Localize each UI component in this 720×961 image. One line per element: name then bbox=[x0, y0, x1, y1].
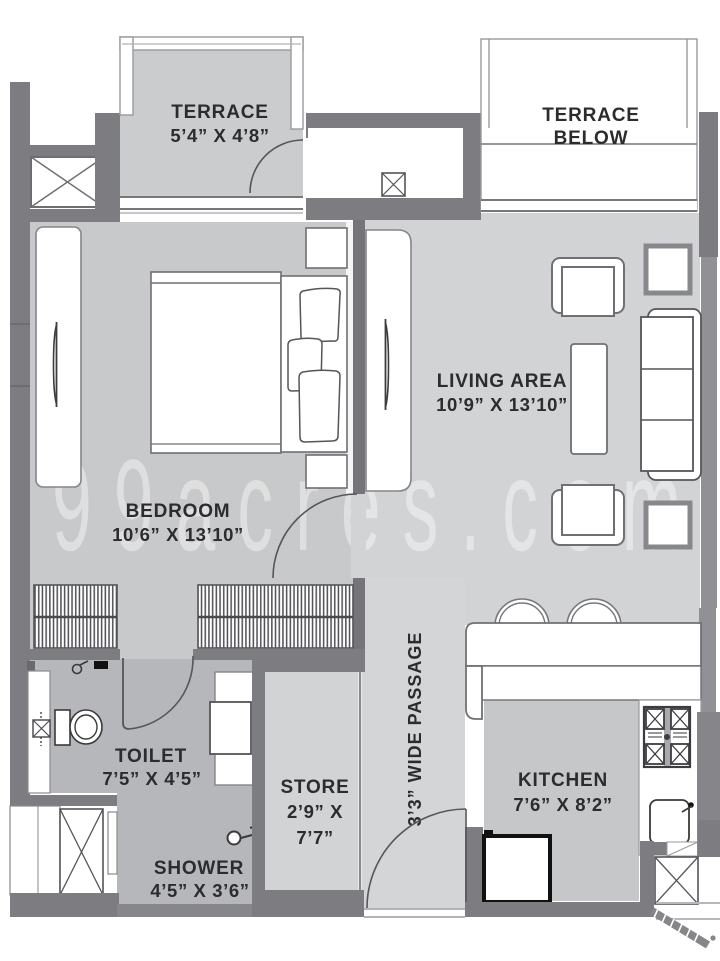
svg-text:4’5” X 3’6”: 4’5” X 3’6” bbox=[150, 880, 249, 901]
svg-text:3’3” WIDE PASSAGE: 3’3” WIDE PASSAGE bbox=[405, 632, 425, 827]
svg-text:KITCHEN: KITCHEN bbox=[518, 770, 608, 791]
svg-text:5’4” X 4’8”: 5’4” X 4’8” bbox=[170, 125, 269, 146]
svg-text:2’9” X: 2’9” X bbox=[287, 801, 343, 822]
svg-text:7’6” X 8’2”: 7’6” X 8’2” bbox=[513, 794, 612, 815]
svg-text:TOILET: TOILET bbox=[115, 746, 187, 767]
svg-text:STORE: STORE bbox=[280, 777, 349, 798]
svg-text:BEDROOM: BEDROOM bbox=[126, 501, 231, 522]
svg-text:LIVING AREA: LIVING AREA bbox=[437, 371, 568, 392]
svg-text:TERRACE: TERRACE bbox=[171, 102, 268, 123]
svg-text:7’7”: 7’7” bbox=[296, 827, 333, 848]
svg-text:7’5” X 4’5”: 7’5” X 4’5” bbox=[102, 768, 201, 789]
svg-text:10’6” X 13’10”: 10’6” X 13’10” bbox=[112, 524, 244, 545]
svg-text:SHOWER: SHOWER bbox=[154, 858, 244, 879]
svg-text:BELOW: BELOW bbox=[554, 128, 629, 149]
svg-text:10’9” X 13’10”: 10’9” X 13’10” bbox=[436, 394, 568, 415]
svg-text:TERRACE: TERRACE bbox=[542, 105, 639, 126]
